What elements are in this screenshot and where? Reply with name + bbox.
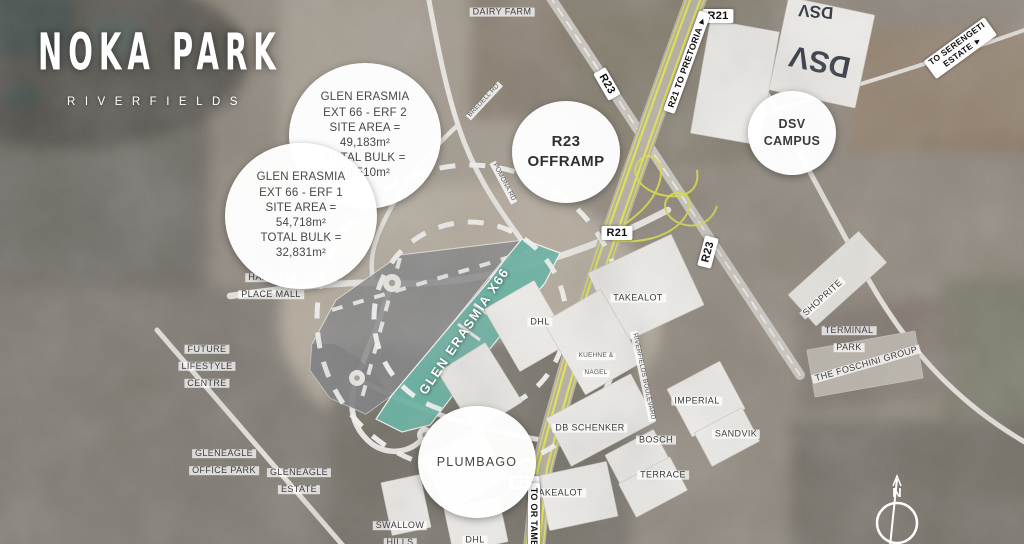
callout-dsv-campus: DSV CAMPUS [748, 91, 836, 175]
brand-logo: NOKA PARK RIVERFIELDS [38, 22, 276, 108]
callout-erf1: GLEN ERASMIA EXT 66 - ERF 1 SITE AREA = … [225, 143, 377, 289]
route-label-to-or-tambo: TO OR TAMBO [528, 483, 540, 544]
riverfields-marketing-map: DSV DSV N GLEN ERASMIA X66 DAIRY FARM HA… [0, 0, 1024, 544]
callout-plumbago: PLUMBAGO [418, 406, 536, 518]
compass-north-label: N [892, 485, 901, 500]
callout-r23-offramp: R23 OFFRAMP [512, 101, 620, 203]
brand-subtitle: RIVERFIELDS [38, 96, 276, 108]
route-label-r21-mid: R21 [601, 226, 632, 240]
brand-title: NOKA PARK [38, 22, 276, 82]
